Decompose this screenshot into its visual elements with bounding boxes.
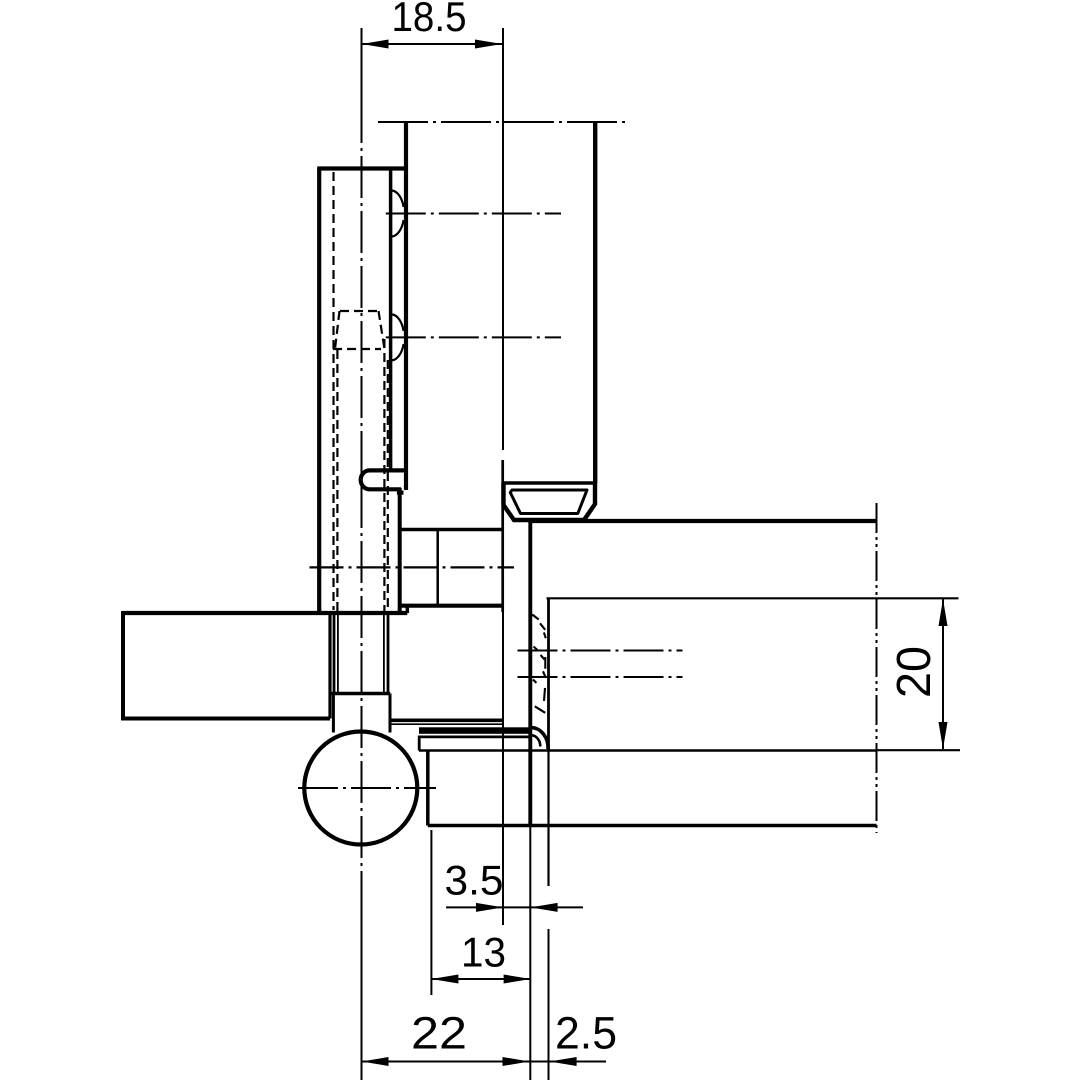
svg-text:20: 20 [888, 646, 941, 698]
svg-text:3.5: 3.5 [445, 857, 504, 904]
svg-text:22: 22 [411, 1008, 467, 1059]
svg-text:2.5: 2.5 [555, 1008, 617, 1059]
svg-text:18.5: 18.5 [392, 0, 467, 40]
svg-text:13: 13 [461, 929, 506, 976]
